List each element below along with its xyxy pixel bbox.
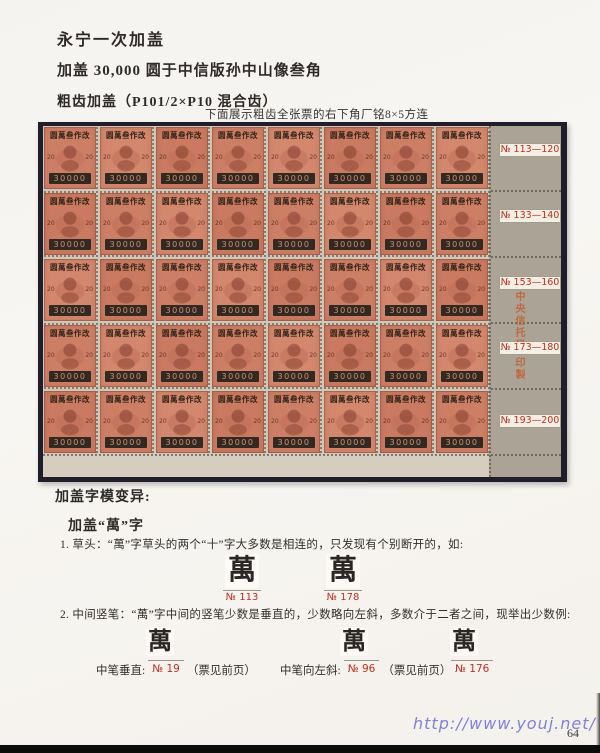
stamp: 圆萬叁作改202030000 [44,391,96,453]
original-denomination: 20 [439,286,447,293]
album-page: 永宁一次加盖 加盖 30,000 圆于中信版孙中山像叁角 粗齿加盖（P101/2… [0,0,600,753]
original-denomination: 20 [271,286,279,293]
stamp-value-tablet: 30000 [49,239,91,250]
stamp: 圆萬叁作改202030000 [156,391,208,453]
stamp-overprint-text: 圆萬叁作改 [436,394,488,406]
original-denomination: 20 [327,352,335,359]
caption-suffix: （票见前页） [382,660,451,678]
original-denomination: 20 [439,352,447,359]
original-denomination: 20 [327,220,335,227]
caption-prefix: 中笔垂直: [96,660,145,678]
stamp: 圆萬叁作改202030000 [100,193,152,255]
stamp-value-tablet: 30000 [273,305,315,316]
original-denomination: 20 [477,418,485,425]
stamp-overprint-text: 圆萬叁作改 [156,328,208,340]
perforation-line [491,454,561,456]
stamp: 圆萬叁作改202030000 [268,193,320,255]
page-title: 永宁一次加盖 [57,26,165,50]
stamp-value-tablet: 30000 [385,305,427,316]
stamp: 圆萬叁作改202030000 [436,127,488,189]
wan-example-caption: № 176 [448,660,496,675]
stamp-value-tablet: 30000 [49,371,91,382]
original-denomination: 20 [141,154,149,161]
stamp-value-tablet: 30000 [441,239,483,250]
stamp-overprint-text: 圆萬叁作改 [100,394,152,406]
stamp-overprint-text: 圆萬叁作改 [324,196,376,208]
original-denomination: 20 [253,286,261,293]
stamp-value-tablet: 30000 [329,173,371,184]
stamp: 圆萬叁作改202030000 [436,391,488,453]
stamp-grid: 圆萬叁作改202030000圆萬叁作改202030000圆萬叁作改2020300… [43,126,489,454]
stamp-overprint-text: 圆萬叁作改 [212,394,264,406]
stamp-value-tablet: 30000 [217,371,259,382]
stamp: 圆萬叁作改202030000 [324,391,376,453]
stamp-value-tablet: 30000 [161,371,203,382]
original-denomination: 20 [365,286,373,293]
wan-example-number: № 176 [451,660,493,675]
stamp: 圆萬叁作改202030000 [380,193,432,255]
variant-item-1: 1. 草头：“萬”字草头的两个“十”字大多数是相连的，只发现有个别断开的，如: [60,536,463,552]
original-denomination: 20 [327,154,335,161]
original-denomination: 20 [309,286,317,293]
original-denomination: 20 [103,154,111,161]
perforation-line [491,388,561,390]
stamp: 圆萬叁作改202030000 [268,259,320,321]
stamp-value-tablet: 30000 [329,239,371,250]
perforation-line [491,322,561,324]
stamp: 圆萬叁作改202030000 [100,127,152,189]
variants-subheading: 加盖“萬”字 [68,515,144,535]
sheet-row-number-label: № 173—180 [500,342,560,354]
original-denomination: 20 [383,286,391,293]
stamp-overprint-text: 圆萬叁作改 [156,262,208,274]
sheet-row-number-label: № 113—120 [500,144,560,156]
stamp-overprint-text: 圆萬叁作改 [100,262,152,274]
stamp-value-tablet: 30000 [273,173,315,184]
sheet-selvage: 中央信托局 印製 № 113—120№ 133—140№ 153—160№ 17… [489,126,561,477]
original-denomination: 20 [159,286,167,293]
printer-imprint: 印製 [511,357,526,381]
stamp: 圆萬叁作改202030000 [212,391,264,453]
original-denomination: 20 [253,352,261,359]
original-denomination: 20 [365,352,373,359]
stamp-overprint-text: 圆萬叁作改 [100,196,152,208]
original-denomination: 20 [141,220,149,227]
stamp: 圆萬叁作改202030000 [268,127,320,189]
original-denomination: 20 [141,286,149,293]
original-denomination: 20 [309,220,317,227]
original-denomination: 20 [215,418,223,425]
stamp-overprint-text: 圆萬叁作改 [212,328,264,340]
original-denomination: 20 [421,220,429,227]
original-denomination: 20 [383,352,391,359]
stamp: 圆萬叁作改202030000 [324,259,376,321]
stamp-overprint-text: 圆萬叁作改 [212,130,264,142]
original-denomination: 20 [271,154,279,161]
stamp-overprint-text: 圆萬叁作改 [436,262,488,274]
wan-glyph: 萬 [146,628,174,656]
original-denomination: 20 [103,352,111,359]
original-denomination: 20 [439,220,447,227]
stamp-value-tablet: 30000 [441,437,483,448]
stamp-value-tablet: 30000 [273,239,315,250]
stamp-value-tablet: 30000 [329,371,371,382]
original-denomination: 20 [327,418,335,425]
stamp-value-tablet: 30000 [49,437,91,448]
stamp: 圆萬叁作改202030000 [156,127,208,189]
stamp: 圆萬叁作改202030000 [44,325,96,387]
stamp: 圆萬叁作改202030000 [44,259,96,321]
stamp: 圆萬叁作改202030000 [380,127,432,189]
stamp-overprint-text: 圆萬叁作改 [268,328,320,340]
caption-prefix: 中笔向左斜: [280,660,341,678]
stamp-overprint-text: 圆萬叁作改 [212,196,264,208]
stamp: 圆萬叁作改202030000 [324,193,376,255]
stamp: 圆萬叁作改202030000 [100,325,152,387]
stamp-overprint-text: 圆萬叁作改 [324,328,376,340]
original-denomination: 20 [477,286,485,293]
sheet-row-number-label: № 193—200 [500,415,560,427]
wan-example-caption: 中笔垂直:№ 19（票见前页） [96,660,256,678]
stamp-value-tablet: 30000 [385,239,427,250]
stamp-overprint-text: 圆萬叁作改 [156,196,208,208]
stamp-value-tablet: 30000 [217,305,259,316]
stamp-overprint-text: 圆萬叁作改 [436,328,488,340]
stamp-value-tablet: 30000 [217,173,259,184]
original-denomination: 20 [253,220,261,227]
wan-glyph: 萬 [326,554,360,588]
stamp-overprint-text: 圆萬叁作改 [100,130,152,142]
stamp-overprint-text: 圆萬叁作改 [380,196,432,208]
original-denomination: 20 [383,418,391,425]
original-denomination: 20 [197,286,205,293]
stamp: 圆萬叁作改202030000 [324,325,376,387]
stamp-value-tablet: 30000 [441,173,483,184]
wan-example: 萬№ 178 [323,554,363,603]
stamp-value-tablet: 30000 [105,371,147,382]
stamp: 圆萬叁作改202030000 [100,391,152,453]
stamp-overprint-text: 圆萬叁作改 [268,196,320,208]
stamp-overprint-text: 圆萬叁作改 [380,394,432,406]
wan-glyph: 萬 [225,554,259,588]
stamp-value-tablet: 30000 [273,371,315,382]
stamp: 圆萬叁作改202030000 [212,127,264,189]
stamp: 圆萬叁作改202030000 [212,325,264,387]
original-denomination: 20 [421,418,429,425]
stamp: 圆萬叁作改202030000 [156,193,208,255]
original-denomination: 20 [141,352,149,359]
stamp-overprint-text: 圆萬叁作改 [380,328,432,340]
stamp-sheet-image: 圆萬叁作改202030000圆萬叁作改202030000圆萬叁作改2020300… [38,122,567,482]
original-denomination: 20 [159,154,167,161]
original-denomination: 20 [309,154,317,161]
sheet-caption: 下面展示粗齿全张票的右下角厂铭8×5方连 [205,106,428,122]
original-denomination: 20 [85,352,93,359]
original-denomination: 20 [271,418,279,425]
stamp-overprint-text: 圆萬叁作改 [268,130,320,142]
stamp-value-tablet: 30000 [441,305,483,316]
stamp-overprint-text: 圆萬叁作改 [100,328,152,340]
stamp-value-tablet: 30000 [385,371,427,382]
wan-glyph: 萬 [450,628,478,656]
original-denomination: 20 [365,418,373,425]
original-denomination: 20 [85,418,93,425]
stamp-value-tablet: 30000 [329,437,371,448]
stamp-value-tablet: 30000 [161,239,203,250]
stamp-value-tablet: 30000 [385,173,427,184]
variant-item-2: 2. 中间竖笔：“萬”字中间的竖笔少数是垂直的，少数略向左斜，多数介于二者之间，… [60,606,571,622]
original-denomination: 20 [365,220,373,227]
original-denomination: 20 [47,352,55,359]
wan-example-number: № 113 [223,590,262,603]
original-denomination: 20 [421,352,429,359]
original-denomination: 20 [215,154,223,161]
original-denomination: 20 [365,154,373,161]
stamp-overprint-text: 圆萬叁作改 [436,130,488,142]
original-denomination: 20 [271,352,279,359]
original-denomination: 20 [197,352,205,359]
stamp-value-tablet: 30000 [329,305,371,316]
original-denomination: 20 [383,154,391,161]
stamp-value-tablet: 30000 [441,371,483,382]
stamp-value-tablet: 30000 [105,305,147,316]
original-denomination: 20 [85,286,93,293]
stamp: 圆萬叁作改202030000 [380,391,432,453]
sheet-row-number-label: № 153—160 [500,277,560,289]
wan-example-caption: 中笔向左斜:№ 96（票见前页） [280,660,451,678]
stamp-overprint-text: 圆萬叁作改 [212,262,264,274]
stamp: 圆萬叁作改202030000 [44,193,96,255]
stamp-value-tablet: 30000 [49,305,91,316]
original-denomination: 20 [197,154,205,161]
original-denomination: 20 [159,220,167,227]
stamp-overprint-text: 圆萬叁作改 [268,394,320,406]
stamp: 圆萬叁作改202030000 [436,259,488,321]
stamp-value-tablet: 30000 [105,173,147,184]
variants-heading: 加盖字模变异: [55,486,151,506]
original-denomination: 20 [141,418,149,425]
stamp-overprint-text: 圆萬叁作改 [44,130,96,142]
stamp: 圆萬叁作改202030000 [100,259,152,321]
stamp-value-tablet: 30000 [161,437,203,448]
stamp: 圆萬叁作改202030000 [436,325,488,387]
stamp: 圆萬叁作改202030000 [324,127,376,189]
overprint-description: 加盖 30,000 圆于中信版孙中山像叁角 [57,59,322,80]
original-denomination: 20 [215,286,223,293]
original-denomination: 20 [197,220,205,227]
original-denomination: 20 [215,352,223,359]
stamp: 圆萬叁作改202030000 [436,193,488,255]
stamp-value-tablet: 30000 [161,305,203,316]
stamp-overprint-text: 圆萬叁作改 [324,262,376,274]
wan-example-number: № 178 [324,590,363,603]
caption-suffix: （票见前页） [187,660,256,678]
original-denomination: 20 [327,286,335,293]
wan-example: 萬№ 113 [222,554,262,603]
original-denomination: 20 [215,220,223,227]
original-denomination: 20 [253,418,261,425]
original-denomination: 20 [85,154,93,161]
perforation-line [491,190,561,192]
original-denomination: 20 [103,286,111,293]
stamp-value-tablet: 30000 [105,437,147,448]
stamp-value-tablet: 30000 [49,173,91,184]
original-denomination: 20 [47,418,55,425]
stamp-overprint-text: 圆萬叁作改 [44,262,96,274]
stamp-value-tablet: 30000 [105,239,147,250]
stamp: 圆萬叁作改202030000 [212,193,264,255]
stamp-overprint-text: 圆萬叁作改 [44,196,96,208]
original-denomination: 20 [477,352,485,359]
wan-example-number: № 96 [344,660,380,675]
original-denomination: 20 [309,418,317,425]
stamp: 圆萬叁作改202030000 [156,259,208,321]
stamp-overprint-text: 圆萬叁作改 [380,262,432,274]
original-denomination: 20 [421,154,429,161]
stamp-overprint-text: 圆萬叁作改 [436,196,488,208]
sheet-row-number-label: № 133—140 [500,210,560,222]
original-denomination: 20 [47,286,55,293]
original-denomination: 20 [85,220,93,227]
original-denomination: 20 [271,220,279,227]
stamp: 圆萬叁作改202030000 [268,325,320,387]
original-denomination: 20 [477,154,485,161]
original-denomination: 20 [383,220,391,227]
stamp: 圆萬叁作改202030000 [44,127,96,189]
scan-edge-shadow [596,693,600,753]
original-denomination: 20 [477,220,485,227]
stamp-overprint-text: 圆萬叁作改 [380,130,432,142]
stamp-overprint-text: 圆萬叁作改 [324,130,376,142]
stamp: 圆萬叁作改202030000 [212,259,264,321]
stamp: 圆萬叁作改202030000 [156,325,208,387]
original-denomination: 20 [103,220,111,227]
original-denomination: 20 [439,418,447,425]
original-denomination: 20 [421,286,429,293]
stamp-overprint-text: 圆萬叁作改 [268,262,320,274]
stamp-overprint-text: 圆萬叁作改 [156,394,208,406]
original-denomination: 20 [47,154,55,161]
original-denomination: 20 [309,352,317,359]
sheet-bottom-margin [43,454,489,477]
stamp-value-tablet: 30000 [273,437,315,448]
original-denomination: 20 [159,352,167,359]
original-denomination: 20 [47,220,55,227]
watermark-url: http://www.youj.net/ [413,714,596,733]
wan-example-number: № 19 [148,660,184,675]
original-denomination: 20 [103,418,111,425]
stamp-overprint-text: 圆萬叁作改 [44,394,96,406]
stamp-overprint-text: 圆萬叁作改 [44,328,96,340]
original-denomination: 20 [159,418,167,425]
stamp: 圆萬叁作改202030000 [380,325,432,387]
stamp-value-tablet: 30000 [217,239,259,250]
stamp-overprint-text: 圆萬叁作改 [156,130,208,142]
stamp-value-tablet: 30000 [217,437,259,448]
stamp-overprint-text: 圆萬叁作改 [324,394,376,406]
stamp: 圆萬叁作改202030000 [380,259,432,321]
original-denomination: 20 [197,418,205,425]
stamp-value-tablet: 30000 [161,173,203,184]
original-denomination: 20 [439,154,447,161]
original-denomination: 20 [253,154,261,161]
stamp: 圆萬叁作改202030000 [268,391,320,453]
wan-glyph: 萬 [340,628,368,656]
stamp-value-tablet: 30000 [385,437,427,448]
scan-bottom-bar [0,745,600,753]
perforation-line [491,256,561,258]
